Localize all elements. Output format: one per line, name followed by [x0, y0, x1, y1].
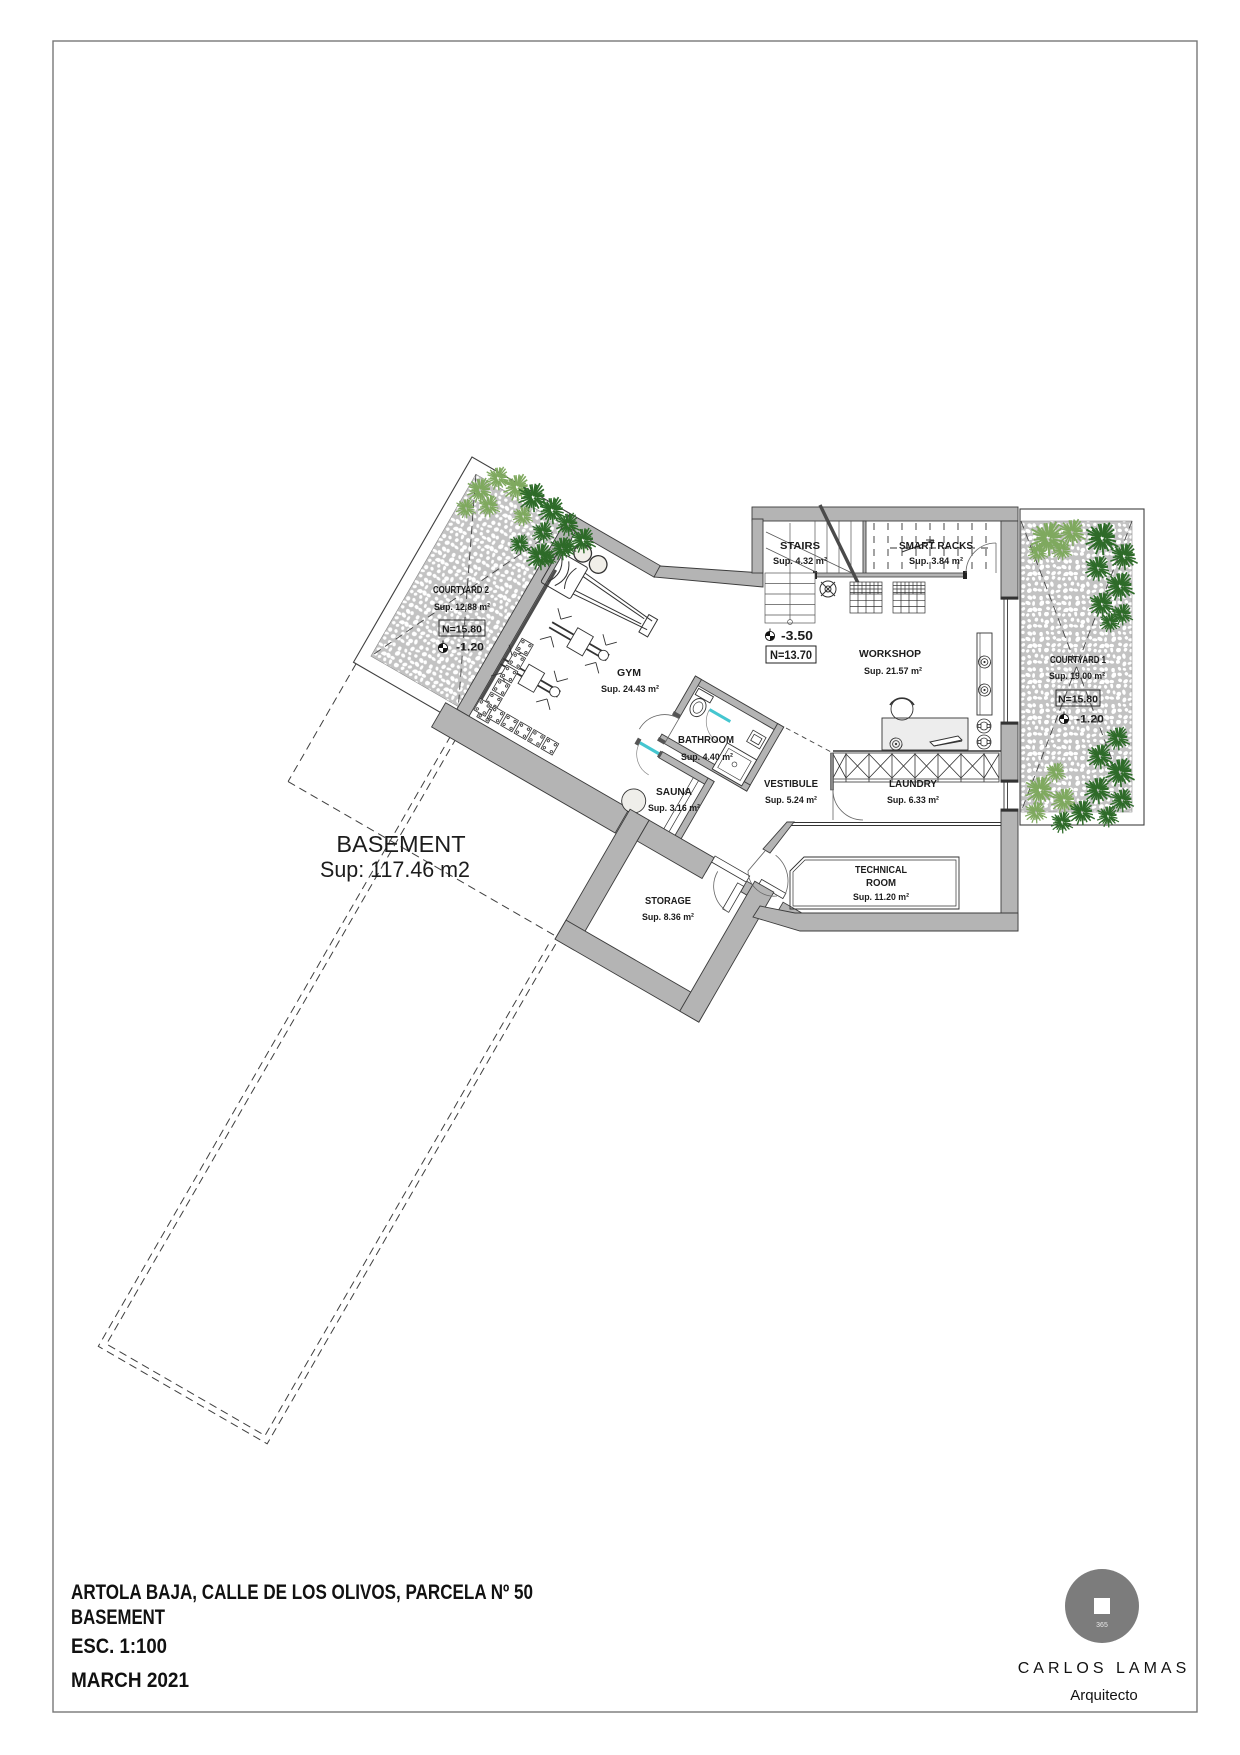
svg-text:Sup: 117.46 m2: Sup: 117.46 m2 [320, 857, 470, 882]
svg-text:-3.50: -3.50 [781, 628, 813, 643]
svg-text:MARCH 2021: MARCH 2021 [71, 1669, 189, 1692]
svg-text:Sup. 8.36 m²: Sup. 8.36 m² [642, 912, 694, 923]
svg-text:BATHROOM: BATHROOM [678, 735, 734, 746]
svg-text:Sup. 6.33 m²: Sup. 6.33 m² [887, 795, 939, 806]
svg-text:SMART RACKS: SMART RACKS [899, 541, 973, 552]
svg-text:SAUNA: SAUNA [656, 787, 692, 798]
svg-text:Sup. 12.88 m²: Sup. 12.88 m² [434, 602, 490, 613]
svg-text:-1.20: -1.20 [456, 642, 484, 654]
svg-text:Arquitecto: Arquitecto [1070, 1687, 1138, 1704]
svg-text:Sup. 4.40 m²: Sup. 4.40 m² [681, 752, 733, 763]
svg-text:N=13.70: N=13.70 [770, 648, 812, 662]
svg-text:ROOM: ROOM [866, 878, 896, 889]
svg-text:ESC. 1:100: ESC. 1:100 [71, 1635, 167, 1658]
svg-text:Sup. 3.84 m²: Sup. 3.84 m² [909, 556, 963, 567]
svg-text:WORKSHOP: WORKSHOP [859, 649, 921, 660]
svg-text:N=15.80: N=15.80 [1058, 694, 1098, 706]
svg-text:Sup. 5.24 m²: Sup. 5.24 m² [765, 795, 817, 806]
svg-text:Sup. 4.32 m²: Sup. 4.32 m² [773, 556, 827, 567]
svg-text:TECHNICAL: TECHNICAL [855, 865, 907, 876]
svg-text:COURTYARD 2: COURTYARD 2 [433, 585, 489, 596]
svg-text:Sup. 19.00 m²: Sup. 19.00 m² [1049, 671, 1105, 682]
svg-text:-1.20: -1.20 [1076, 714, 1104, 726]
svg-text:CARLOS LAMAS: CARLOS LAMAS [1018, 1660, 1190, 1677]
svg-text:LAUNDRY: LAUNDRY [889, 779, 937, 790]
svg-text:STAIRS: STAIRS [780, 541, 820, 552]
svg-text:GYM: GYM [617, 668, 641, 679]
svg-text:365: 365 [1096, 1622, 1108, 1629]
svg-text:BASEMENT: BASEMENT [71, 1606, 165, 1629]
svg-text:VESTIBULE: VESTIBULE [764, 779, 818, 790]
svg-text:Sup. 11.20 m²: Sup. 11.20 m² [853, 892, 909, 903]
svg-text:ARTOLA BAJA, CALLE DE LOS OLIV: ARTOLA BAJA, CALLE DE LOS OLIVOS, PARCEL… [71, 1581, 533, 1604]
svg-text:N=15.80: N=15.80 [442, 624, 482, 636]
svg-text:STORAGE: STORAGE [645, 896, 691, 907]
svg-text:BASEMENT: BASEMENT [336, 831, 465, 857]
svg-text:Sup. 24.43 m²: Sup. 24.43 m² [601, 684, 659, 695]
svg-text:Sup. 21.57 m²: Sup. 21.57 m² [864, 666, 922, 677]
svg-text:Sup. 3.16 m²: Sup. 3.16 m² [648, 803, 700, 814]
svg-text:COURTYARD 1: COURTYARD 1 [1050, 655, 1106, 666]
